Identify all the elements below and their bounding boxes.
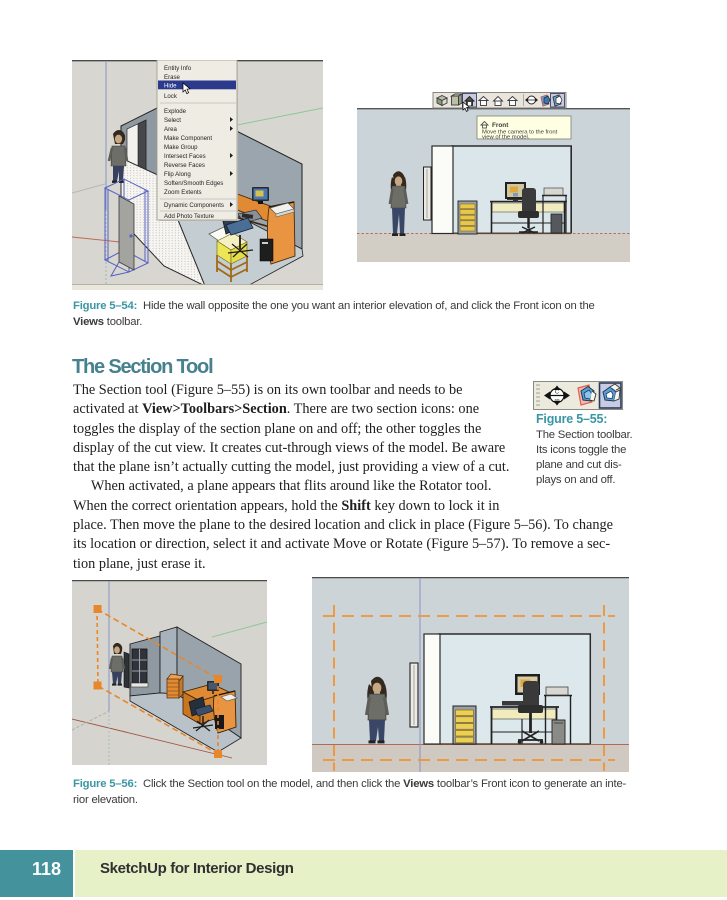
svg-text:Lock: Lock [164,93,178,100]
svg-text:Intersect Faces: Intersect Faces [164,153,206,160]
svg-text:69: 69 [554,398,560,403]
svg-text:Reverse Faces: Reverse Faces [164,162,205,169]
svg-text:Select: Select [164,117,181,124]
svg-text:Dynamic Components: Dynamic Components [164,202,224,209]
svg-text:C: C [555,390,559,396]
svg-text:Explode: Explode [164,108,187,115]
svg-text:Front: Front [492,122,509,129]
svg-text:Entity Info: Entity Info [164,65,192,72]
svg-text:Area: Area [164,126,177,133]
svg-text:Make Component: Make Component [164,135,212,142]
svg-text:Zoom Extents: Zoom Extents [164,189,202,196]
svg-text:Soften/Smooth Edges: Soften/Smooth Edges [164,180,223,187]
svg-text:Erase: Erase [164,74,181,81]
svg-text:view of the model.: view of the model. [482,134,530,140]
svg-text:Flip Along: Flip Along [164,171,191,178]
svg-text:Make Group: Make Group [164,144,198,151]
svg-text:Hide: Hide [164,83,177,90]
svg-text:Add Photo Texture: Add Photo Texture [164,213,215,220]
